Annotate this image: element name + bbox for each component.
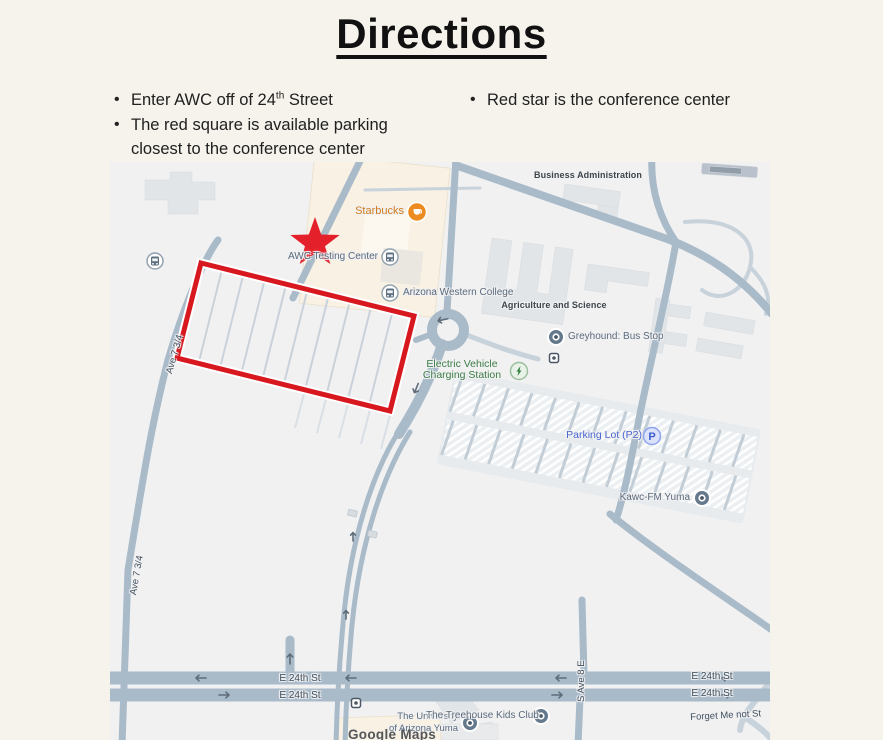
building-northwest bbox=[145, 172, 215, 214]
bus-stop-icon bbox=[382, 285, 398, 301]
map-graphics: P bbox=[110, 162, 770, 740]
parking-p2-icon: P bbox=[644, 428, 661, 445]
svg-text:P: P bbox=[648, 431, 655, 443]
bullet-enter-awc: Enter AWC off of 24th Street bbox=[112, 88, 442, 113]
label-e-24th-st: E 24th St bbox=[672, 671, 752, 682]
starbucks-icon bbox=[408, 203, 427, 222]
bus-square-icon bbox=[352, 699, 361, 708]
label-e-24th-st: E 24th St bbox=[672, 688, 752, 699]
label-greyhound-bus-stop: Greyhound: Bus Stop bbox=[568, 331, 664, 342]
bullet-red-star: Red star is the conference center bbox=[468, 88, 798, 113]
label-parking-lot-p2: Parking Lot (P2) bbox=[558, 430, 642, 441]
label-treehouse-kids-club: The Treehouse Kids Club bbox=[426, 710, 532, 721]
label-kawc-fm-yuma: Kawc-FM Yuma bbox=[605, 492, 690, 503]
building-agriculture-science bbox=[481, 238, 573, 325]
label-business-administration: Business Administration bbox=[518, 170, 658, 181]
building-mid bbox=[584, 264, 649, 298]
label-awc-testing-center: AWC Testing Center bbox=[270, 251, 378, 262]
google-maps-watermark: Google Maps bbox=[348, 727, 436, 740]
label-ev-charging-station: Electric VehicleCharging Station bbox=[408, 359, 516, 381]
label-starbucks: Starbucks bbox=[316, 206, 404, 217]
label-e-24th-st: E 24th St bbox=[260, 673, 340, 684]
bus-stop-icon bbox=[147, 253, 163, 269]
bullet-red-square: The red square is available parking clos… bbox=[112, 113, 442, 162]
bullet-list-left: Enter AWC off of 24th Street The red squ… bbox=[112, 88, 442, 162]
road-ave-7-3-4 bbox=[122, 240, 218, 740]
label-arizona-western-college: Arizona Western College bbox=[403, 287, 513, 298]
page-title: Directions bbox=[0, 10, 883, 58]
kawc-pin-icon bbox=[694, 490, 710, 506]
label-agriculture-science: Agriculture and Science bbox=[484, 300, 624, 311]
label-e-24th-st: E 24th St bbox=[260, 690, 340, 701]
bus-stop-icon bbox=[382, 249, 398, 265]
parking-lot-p2 bbox=[437, 370, 762, 524]
campus-map: P Starbucks AWC Testing Center Arizona W… bbox=[110, 162, 770, 740]
bus-square-icon bbox=[550, 354, 559, 363]
ordinal-suffix: th bbox=[276, 91, 284, 102]
label-s-ave-8-e: S Ave 8 E bbox=[576, 660, 587, 702]
greyhound-pin-icon bbox=[548, 329, 564, 345]
bullet-list-right: Red star is the conference center bbox=[468, 88, 798, 113]
building-topright bbox=[701, 163, 758, 178]
